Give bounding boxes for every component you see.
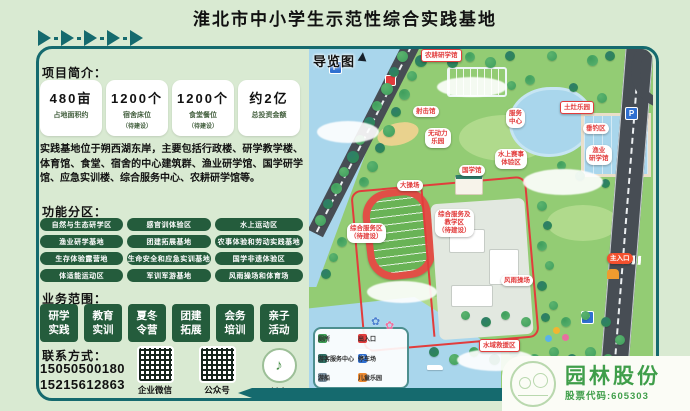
tree [545, 261, 554, 270]
tree [521, 317, 531, 327]
zone-pill: 风雨操场和体育场 [215, 269, 303, 282]
pavilion-building [455, 175, 483, 195]
playground-dot [562, 334, 569, 341]
legend-label: 停车场 [358, 354, 376, 363]
map-label-unpowered-park: 无动力 乐园 [425, 128, 451, 148]
tree [383, 125, 395, 137]
tree [543, 221, 552, 230]
legend-label: 出入口 [358, 334, 376, 343]
intro-description: 实践基地位于朔西湖东岸，主要包括行政楼、研学教学楼、体育馆、食堂、宿舍的中心建筑… [40, 143, 303, 187]
play-arrow-icon [84, 30, 97, 46]
stat-note: （待建设） [106, 121, 168, 130]
tree [537, 281, 547, 291]
zone-pill: 水上运动区 [215, 218, 303, 231]
qr-wechat-work: 企业微信 [131, 348, 179, 398]
map-label-guoxue-hall: 国学馆 [459, 165, 485, 176]
stat-card-investment: 约2亿 总投资金额 [238, 80, 300, 136]
tree [481, 317, 491, 327]
tree [537, 201, 547, 211]
zone-pill: 感官训体验区 [127, 218, 210, 231]
brand-card: 园林股份 股票代码:605303 [502, 356, 690, 411]
tree [537, 241, 547, 251]
tree [367, 161, 378, 172]
map-label-shooting-hall: 射击馆 [413, 106, 439, 117]
zone-pill: 渔业研学基地 [40, 235, 123, 248]
map-label-fishery-hall: 渔业 研学馆 [586, 145, 612, 165]
tree [505, 51, 515, 61]
map-legend: 厕所 出入口 游客服务中心 停车场 游船 儿童乐园 [313, 327, 409, 389]
business-card: 团建 拓展 [172, 304, 210, 342]
map-label-water-rescue: 水域救援区 [479, 339, 520, 352]
business-card: 亲子 活动 [260, 304, 298, 342]
map-label-playground: 大操场 [397, 180, 423, 191]
legend-item-toilet: 厕所 [318, 334, 358, 343]
zone-pill: 农事体验和劳动实践基地 [215, 235, 303, 248]
business-card: 教育 实训 [84, 304, 122, 342]
stat-card-beds: 1200个 宿舍床位 （待建设） [106, 80, 168, 136]
tree [315, 215, 326, 226]
tree [587, 55, 598, 66]
cloud [437, 77, 507, 97]
business-cards: 研学 实践 教育 实训 夏冬 令营 团建 拓展 会务 培训 亲子 活动 [40, 304, 303, 342]
stat-value: 约2亿 [238, 88, 300, 107]
map-label-fishing-area: 垂钓区 [583, 123, 609, 134]
north-arrow-icon: ▲ [354, 49, 371, 66]
business-card: 研学 实践 [40, 304, 78, 342]
zone-pill: 生存体验露营地 [40, 252, 123, 265]
page-title: 淮北市中小学生示范性综合实践基地 [0, 5, 690, 30]
boat [427, 365, 443, 370]
tree [561, 317, 571, 327]
legend-item-boat: 游船 [318, 373, 358, 382]
zone-pill: 国学非遗体验区 [215, 252, 303, 265]
legend-item-parking: 停车场 [358, 354, 404, 363]
stat-note: （待建设） [172, 121, 234, 130]
tree [329, 253, 338, 262]
qr-label: 企业微信 [131, 384, 179, 396]
legend-label: 游客服务中心 [318, 354, 354, 363]
garden-logo-icon [510, 361, 556, 407]
tree [597, 93, 607, 103]
decor-arrow-strip [38, 30, 143, 46]
parking-sign-icon [625, 107, 638, 120]
grass-patch [547, 205, 619, 241]
map-label-service-center: 服务 中心 [506, 108, 525, 128]
tree [391, 107, 401, 117]
map-label-farming-hall: 农耕研学馆 [421, 49, 462, 62]
tree [359, 177, 369, 187]
stat-label: 总投资金额 [238, 110, 300, 120]
map-title: 导览图 [313, 51, 355, 70]
tree [569, 83, 578, 92]
tree [337, 237, 347, 247]
tree [339, 167, 349, 177]
map-label-water-sports: 水上赛事 体验区 [495, 149, 527, 169]
tree [525, 75, 535, 85]
zone-pill: 军训军游基地 [127, 269, 210, 282]
zone-pill: 团建拓展基地 [127, 235, 210, 248]
stat-label: 宿舍床位 [106, 110, 168, 120]
playground-dot [545, 335, 552, 342]
map-label-main-entrance: 主入口 [607, 253, 633, 264]
tree [407, 71, 417, 81]
tree [375, 143, 385, 153]
tree [397, 51, 408, 62]
stat-cards: 480亩 占地面积约 1200个 宿舍床位 （待建设） 1200个 食堂餐位 （… [40, 80, 300, 136]
legend-item-entrance: 出入口 [358, 334, 404, 343]
stat-value: 1200个 [106, 88, 168, 107]
stat-label: 占地面积约 [40, 110, 102, 120]
zone-pill: 生命安全和应急实训基地 [127, 252, 210, 265]
business-card: 会务 培训 [216, 304, 254, 342]
tree [321, 269, 331, 279]
tree [461, 311, 470, 320]
play-arrow-icon [107, 30, 120, 46]
stat-card-area: 480亩 占地面积约 [40, 80, 102, 136]
flower-icon: ✿ [385, 319, 394, 332]
legend-label: 儿童乐园 [358, 373, 382, 382]
tree [331, 183, 342, 194]
tree [581, 311, 590, 320]
tree [601, 317, 611, 327]
legend-item-playground: 儿童乐园 [358, 373, 404, 382]
map-label-teaching-zone: 综合服务及 教学区 （待建设） [435, 209, 474, 237]
zone-pill: 体适能运动区 [40, 269, 123, 282]
tree [501, 311, 510, 320]
playground-dot [553, 327, 560, 334]
map-label-service-zone: 综合服务区 （待建设） [347, 223, 386, 243]
legend-label: 厕所 [318, 334, 330, 343]
tree [615, 335, 625, 345]
tree [323, 199, 333, 209]
tree [549, 301, 558, 310]
tree [372, 101, 382, 111]
tree [399, 89, 410, 100]
map-label-stove-park: 土灶乐园 [560, 101, 594, 114]
play-arrow-icon [61, 30, 74, 46]
cloud [523, 169, 603, 195]
douyin-stamp-icon: ♪ [262, 348, 297, 383]
qr-code-image [201, 348, 234, 381]
map-label-covered-field: 风雨操场 [501, 275, 533, 286]
tree [389, 67, 399, 77]
zone-pills: 自然与生态研学区 感官训体验区 水上运动区 渔业研学基地 团建拓展基地 农事体验… [40, 218, 303, 282]
dash-icon [77, 37, 81, 40]
intro-heading: 项目简介： [42, 64, 107, 81]
zone-pill: 自然与生态研学区 [40, 218, 123, 231]
tree [465, 52, 475, 62]
stock-code: 股票代码:605303 [565, 388, 661, 402]
tree [381, 83, 393, 95]
qr-official-account: 公众号 [193, 348, 241, 398]
tree [347, 151, 359, 163]
tree [429, 347, 439, 357]
qr-code-image [139, 348, 172, 381]
tree [507, 81, 516, 90]
flower-icon: ✿ [371, 315, 380, 328]
guide-map: 导览图 ▲ 农耕研学馆 射击馆 无动力 乐园 服务 中心 土灶乐园 垂钓区 渔业… [309, 49, 653, 392]
cloud [317, 121, 379, 143]
stat-value: 1200个 [172, 88, 234, 107]
legend-label: 游船 [318, 373, 330, 382]
phone-number: 15050500180 [40, 361, 125, 377]
stat-card-seats: 1200个 食堂餐位 （待建设） [172, 80, 234, 136]
tree [541, 313, 550, 322]
business-card: 夏冬 令营 [128, 304, 166, 342]
tree [485, 57, 496, 68]
dash-icon [54, 37, 58, 40]
entrance-gate [607, 269, 619, 279]
legend-item-visitor-center: 游客服务中心 [318, 354, 358, 363]
dash-icon [123, 37, 127, 40]
play-arrow-icon [130, 30, 143, 46]
dash-icon [100, 37, 104, 40]
tree [605, 51, 615, 61]
stat-value: 480亩 [40, 88, 102, 107]
cloud [367, 281, 437, 303]
stat-label: 食堂餐位 [172, 110, 234, 120]
phone-number: 15215612863 [40, 377, 125, 393]
play-arrow-icon [38, 30, 51, 46]
qr-label: 公众号 [193, 384, 241, 396]
tree [547, 51, 557, 61]
contact-phones: 15050500180 15215612863 [40, 361, 125, 392]
brand-name: 园林股份 [565, 365, 661, 388]
